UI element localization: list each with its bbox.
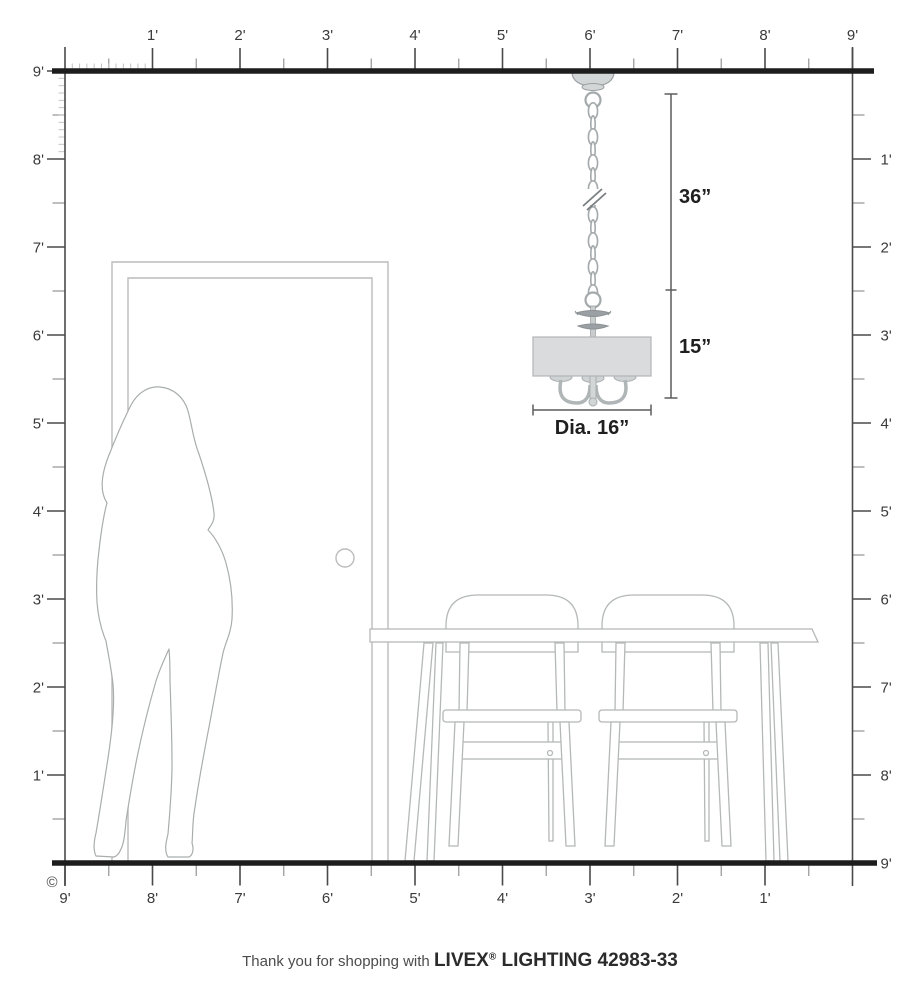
finial-saucer-lower [578,324,608,329]
ruler-label: 9' [881,856,892,873]
ruler-label: 9' [33,64,44,81]
ruler-label: 4' [409,27,420,44]
ruler-label: 8' [33,152,44,169]
bottom-finial [589,398,597,406]
fixture-loop [586,293,601,308]
ruler-label: 5' [881,504,892,521]
ruler-label: 6' [881,592,892,609]
center-column [590,376,596,399]
ruler-label: 1' [33,768,44,785]
ruler-label: 5' [497,27,508,44]
ruler-label: 5' [409,890,420,907]
fixture-arm [596,380,626,403]
door-knob [336,549,354,567]
ruler-label: 4' [497,890,508,907]
copyright-symbol: © [46,874,57,891]
ruler-label: 7' [33,240,44,257]
ruler-label: 5' [33,416,44,433]
ruler-label: 7' [234,890,245,907]
ruler-label: 1' [881,152,892,169]
dining-table [370,629,818,861]
fixture-arm [560,380,590,403]
ruler-label: 6' [33,328,44,345]
ruler-label: 3' [881,328,892,345]
ruler-label: 8' [147,890,158,907]
pendant-fixture [533,72,651,406]
ruler-label: 7' [672,27,683,44]
ruler-label: 2' [881,240,892,257]
canopy-collar [582,84,604,91]
finial-saucer-upper [575,311,611,317]
ruler-label: 1' [147,27,158,44]
footer-prefix: Thank you for shopping with [242,953,430,970]
ruler-label: 7' [881,680,892,697]
ruler-label: 4' [33,504,44,521]
chain-length-label: 36” [679,186,711,208]
ruler-label: 9' [847,27,858,44]
ruler-label: 1' [759,890,770,907]
ruler-label: 8' [759,27,770,44]
ruler-label: 2' [672,890,683,907]
person-silhouette [94,387,232,857]
table-top [370,629,818,642]
ruler-label: 6' [322,890,333,907]
ruler-label: 9' [59,890,70,907]
footer-text: Thank you for shopping with LIVEX® LIGHT… [0,950,920,972]
ruler-label: 2' [234,27,245,44]
fixture-diameter-label: Dia. 16” [555,417,629,439]
ruler-label: 4' [881,416,892,433]
ruler-label: 3' [584,890,595,907]
drum-shade [533,337,651,376]
ruler-label: 8' [881,768,892,785]
ruler-label: 6' [584,27,595,44]
ruler-label: 3' [33,592,44,609]
ruler-label: 2' [33,680,44,697]
diagram-canvas: 1'2'3'4'5'6'7'8'9'9'8'7'6'5'4'3'2'1'1'2'… [0,0,920,920]
ruler-label: 3' [322,27,333,44]
product-number: LIGHTING 42983-33 [502,950,678,971]
brand-name: LIVEX [434,950,489,971]
fixture-height-label: 15” [679,336,711,358]
